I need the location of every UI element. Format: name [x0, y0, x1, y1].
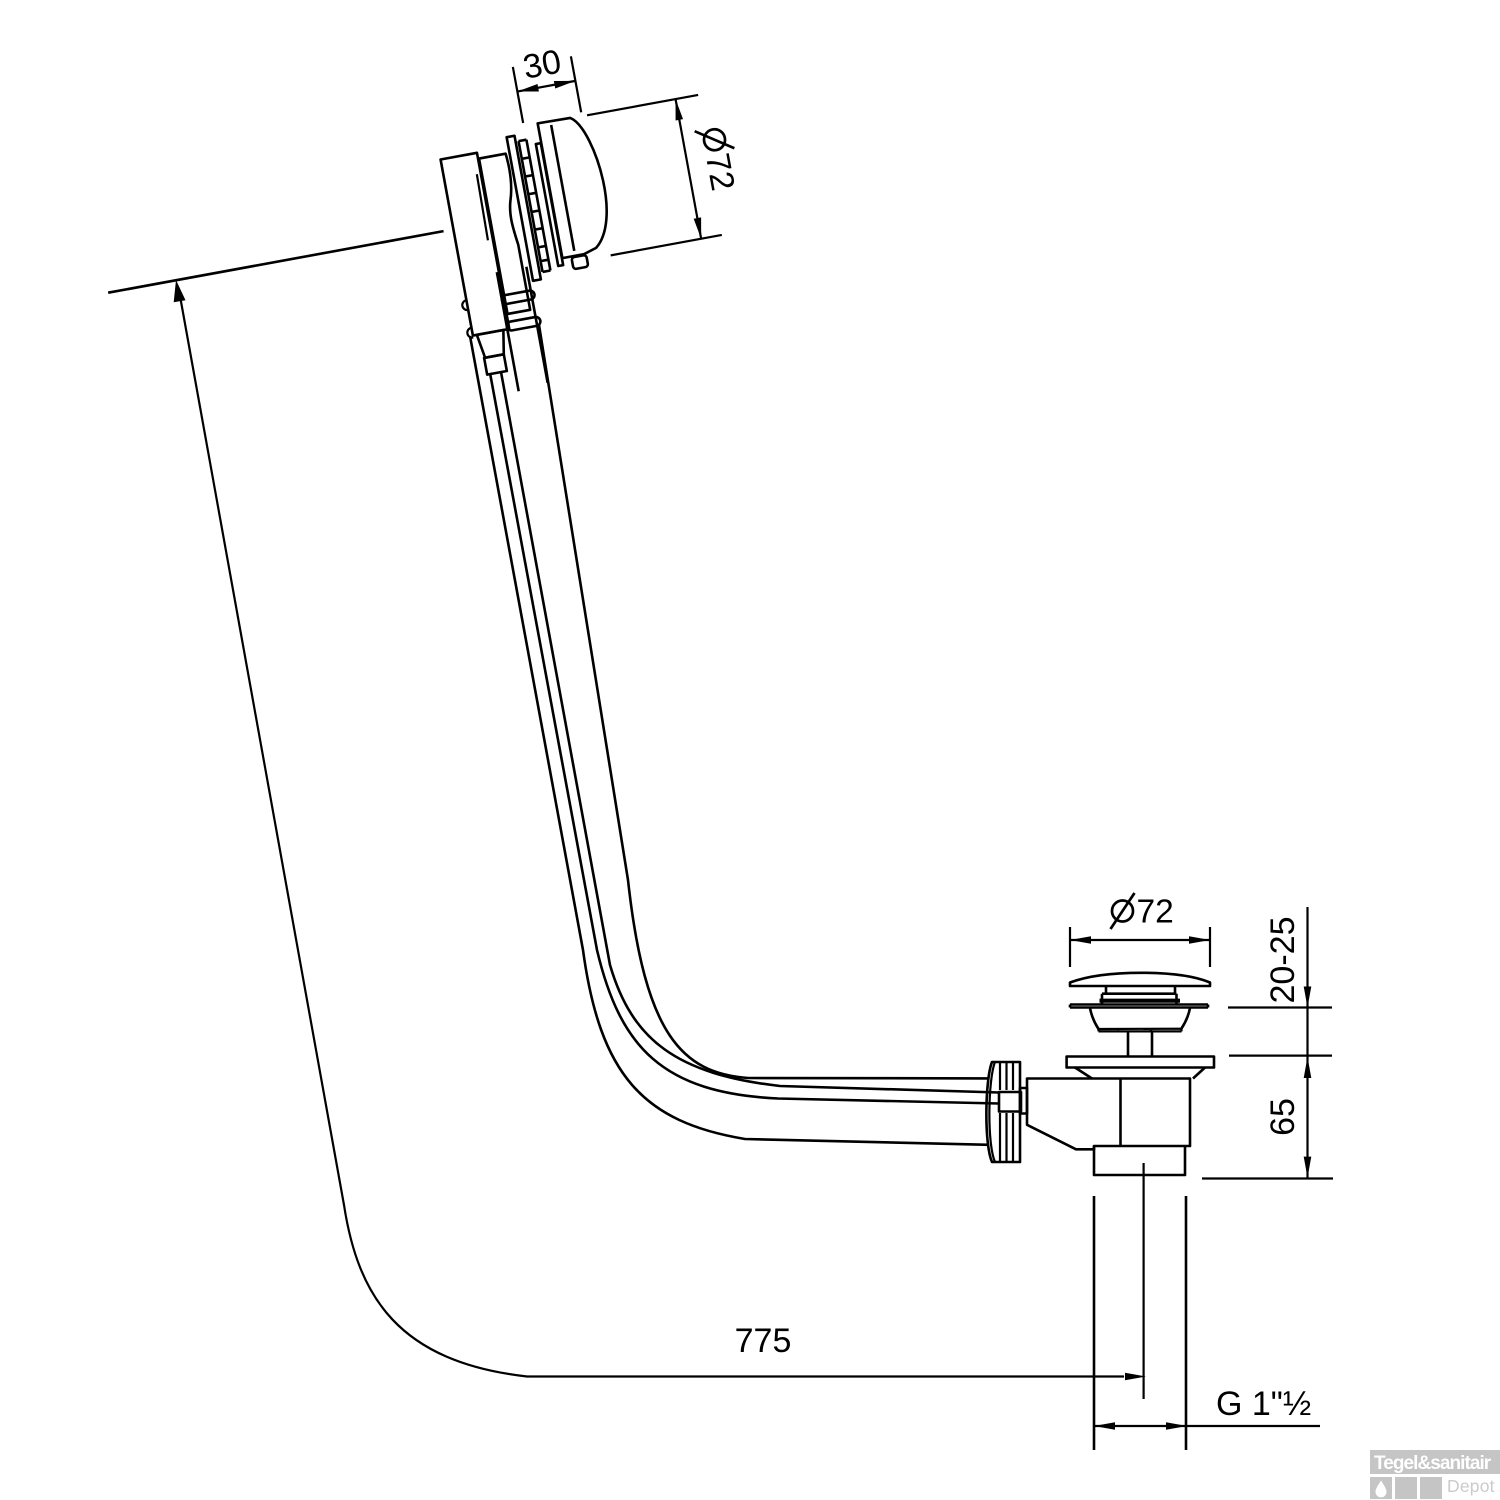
svg-text:G 1"½: G 1"½	[1216, 1385, 1311, 1423]
svg-text:65: 65	[1264, 1098, 1302, 1136]
svg-text:20-25: 20-25	[1264, 917, 1302, 1004]
svg-text:Tegel&sanitair: Tegel&sanitair	[1374, 1453, 1492, 1474]
svg-text:30: 30	[520, 43, 564, 87]
svg-text:72: 72	[1137, 894, 1174, 931]
svg-text:Depot: Depot	[1447, 1476, 1495, 1496]
svg-text:775: 775	[735, 1322, 792, 1360]
svg-text:72: 72	[698, 150, 741, 193]
